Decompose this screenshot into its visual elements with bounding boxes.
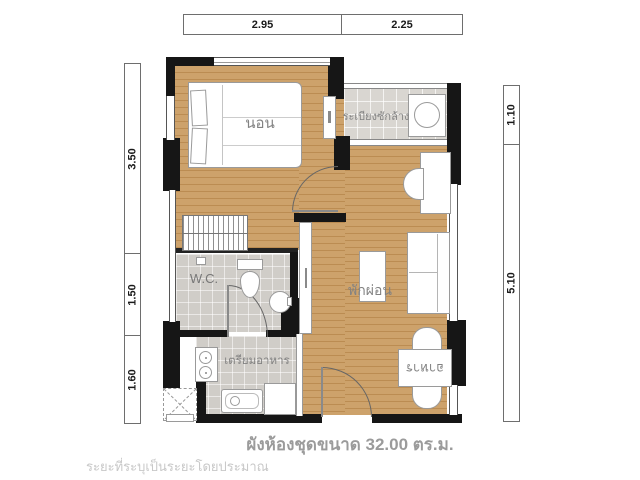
dimension-top-width-1: 2.95	[183, 14, 342, 35]
shaft-sill	[166, 414, 194, 422]
wall-bedroom-ne	[334, 136, 350, 170]
desk	[420, 152, 451, 214]
left-window-upper	[166, 96, 175, 140]
entrance-door-leaf	[321, 367, 323, 417]
wall-wc-north	[294, 213, 346, 222]
washing-machine	[408, 94, 446, 137]
dimension-bar-left: 3.50 1.50 1.60	[124, 63, 141, 424]
wall-bottom-left	[196, 414, 322, 423]
sofa-cushion-line	[409, 272, 437, 273]
burner-dot	[205, 357, 207, 359]
pillow	[190, 128, 208, 165]
sheet-line	[223, 145, 301, 146]
dimension-left-1: 3.50	[124, 63, 141, 254]
wardrobe	[182, 215, 248, 251]
burner-dot	[205, 372, 207, 374]
panel-handle	[305, 268, 307, 288]
bedroom-label: นอน	[225, 112, 295, 134]
wall-bottom-right	[372, 414, 462, 423]
dimension-value: 1.10	[506, 104, 518, 125]
dimension-value: 2.25	[391, 19, 412, 31]
dimension-left-2: 1.50	[124, 253, 141, 336]
sink-drain-icon	[230, 396, 240, 406]
stove	[195, 347, 218, 382]
plan-disclaimer: ระยะที่ระบุเป็นระยะโดยประมาณ	[86, 457, 286, 475]
sofa-back-line	[437, 234, 438, 312]
kitchen-counter	[264, 383, 296, 415]
dimension-value: 1.60	[127, 369, 139, 390]
shower-outlet	[196, 257, 206, 265]
wall-wc-south-right	[266, 330, 298, 337]
wall-post-bedroom-balcony	[328, 57, 344, 99]
balcony-railing	[344, 83, 447, 89]
window-mullion	[214, 62, 330, 63]
sofa	[407, 232, 450, 314]
balcony-sliding-window	[350, 139, 447, 146]
wall-wc-east	[290, 252, 298, 302]
dimension-left-3: 1.60	[124, 335, 141, 424]
dimension-right-2: 5.10	[503, 144, 520, 422]
living-label: พักผ่อน	[328, 280, 412, 302]
balcony-label: ระเบียงซักล้าง	[340, 106, 412, 126]
washing-machine-drum-icon	[414, 102, 440, 128]
wc-sink-tap	[287, 297, 292, 306]
kitchen-label: เตรียมอาหาร	[212, 352, 302, 370]
floor-plan-canvas: 2.95 2.25 3.50 1.50 1.60 1.10 5.10	[0, 0, 640, 480]
dimension-bar-top: 2.95 2.25	[183, 14, 463, 35]
bedroom-window	[214, 57, 330, 66]
dining-table: อาหาร	[398, 349, 452, 387]
pillow	[190, 90, 208, 127]
dimension-value: 5.10	[506, 272, 518, 293]
dimension-value: 3.50	[127, 148, 139, 169]
plan-caption: ผังห้องชุดขนาด 32.00 ตร.ม.	[240, 432, 460, 456]
toilet-tank	[237, 259, 263, 270]
bedroom-door-leaf	[292, 210, 338, 212]
wardrobe-shelf-line	[183, 233, 247, 234]
wc-door-leaf	[227, 285, 229, 337]
dimension-right-1: 1.10	[503, 85, 520, 145]
kitchen-sink	[221, 389, 263, 413]
dimension-value: 1.50	[127, 284, 139, 305]
balcony-door-panel	[323, 96, 336, 139]
wc-label: W.C.	[186, 270, 222, 286]
dimension-value: 2.95	[252, 19, 273, 31]
dining-label: อาหาร	[406, 358, 444, 379]
right-window-lower	[449, 385, 458, 415]
left-wall-thin	[169, 190, 176, 322]
wc-side-panel	[299, 222, 312, 334]
wall-top-left-v	[166, 57, 175, 98]
wall-shaft-side	[196, 378, 206, 418]
wall-wc-south-left	[176, 330, 228, 337]
wall-left-block-upper	[163, 138, 180, 191]
door-handle	[328, 111, 331, 123]
kitchen-partition	[296, 334, 303, 416]
blanket-fold-line	[222, 85, 223, 165]
dimension-top-width-2: 2.25	[341, 14, 463, 35]
dimension-bar-right: 1.10 5.10	[503, 85, 520, 422]
